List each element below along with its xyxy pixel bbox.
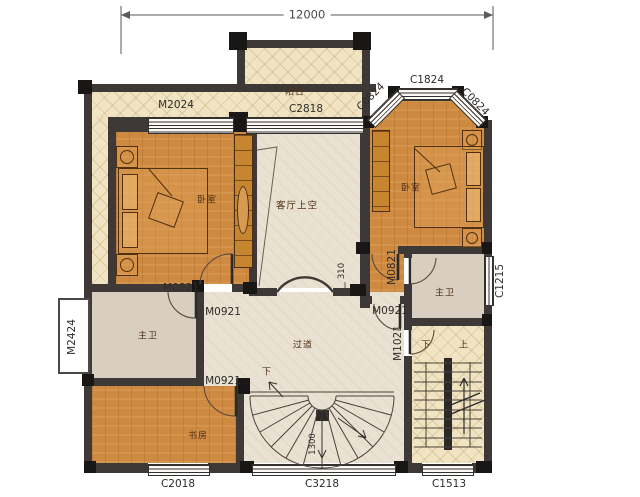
pillow — [122, 212, 138, 248]
stair-handrail — [444, 358, 452, 450]
corner-post — [350, 284, 366, 296]
wall-segment — [484, 120, 492, 256]
label-door-m0921-right: M0921 — [372, 306, 408, 317]
wall-segment — [237, 40, 370, 48]
label-door-m0921-study: M0921 — [205, 376, 241, 387]
wardrobe-right — [372, 130, 390, 212]
pillow — [466, 152, 481, 186]
wall-segment — [84, 284, 168, 292]
wall-segment — [404, 356, 412, 463]
window-c2818 — [246, 117, 364, 134]
corner-post — [482, 242, 492, 254]
wall-segment — [84, 378, 204, 386]
wall-segment — [84, 84, 376, 92]
total-width-dimension: 12000 — [284, 9, 331, 21]
label-window-c1215: C1215 — [495, 264, 506, 298]
label-bedroom-right: 卧室 — [401, 185, 421, 194]
label-stair-down-straight: 下 — [421, 342, 431, 351]
label-door-m0821-left: M0821 — [163, 283, 199, 294]
wall-segment — [108, 117, 116, 292]
wall-segment — [400, 296, 412, 304]
nightstand — [116, 146, 138, 168]
label-study: 书房 — [188, 433, 208, 442]
label-door-m0821-right: M0821 — [387, 249, 398, 285]
label-stair-down-curved: 下 — [262, 369, 272, 378]
floor-plan: 12000 阳台 C2818 M2024 C1824 C0824 C0824 卧… — [0, 0, 640, 497]
corner-post — [356, 242, 370, 254]
label-window-c1513: C1513 — [432, 479, 466, 490]
label-window-c1824: C1824 — [410, 75, 444, 86]
pillow — [466, 188, 481, 222]
nightstand — [116, 254, 138, 276]
corner-post — [394, 461, 408, 473]
stair-newel-post — [316, 410, 329, 421]
label-bedroom-left: 卧室 — [197, 197, 217, 206]
wall-segment — [404, 254, 412, 258]
label-window-c2018: C2018 — [161, 479, 195, 490]
corner-post — [353, 32, 371, 50]
label-balcony: 阳台 — [285, 89, 305, 98]
corner-post — [476, 461, 492, 473]
label-window-c3218: C3218 — [305, 479, 339, 490]
corner-post — [78, 80, 92, 94]
wall-segment — [257, 288, 277, 296]
label-window-c2818: C2818 — [289, 104, 323, 115]
study-floor — [92, 386, 236, 463]
label-door-m2024: M2024 — [158, 100, 194, 111]
label-corridor: 过道 — [293, 342, 313, 351]
label-door-m2424: M2424 — [67, 319, 78, 355]
window-c2018 — [148, 464, 210, 476]
wardrobe-mirror — [237, 186, 249, 234]
label-door-m1021: M1021 — [393, 325, 404, 361]
door-m2024-symbol — [148, 117, 234, 134]
window-c3218 — [252, 464, 396, 476]
window-c1513 — [422, 464, 474, 476]
label-bath-left: 主卫 — [138, 333, 158, 342]
wall-segment — [84, 84, 92, 463]
corner-post — [482, 314, 492, 326]
wall-segment — [366, 296, 372, 304]
dim-arch-offset: 310 — [338, 263, 347, 279]
dim-stairwell-width: 1300 — [309, 433, 318, 455]
balcony-floor-left-strip — [92, 117, 108, 284]
window-c1215 — [484, 256, 494, 306]
label-door-m0921-bath-left: M0921 — [205, 307, 241, 318]
pillow — [122, 174, 138, 210]
wall-segment — [196, 284, 204, 386]
wall-segment — [404, 318, 492, 326]
corner-post — [82, 374, 94, 386]
label-bath-right: 主卫 — [435, 290, 455, 299]
wall-segment — [484, 304, 492, 473]
wall-segment — [360, 120, 370, 308]
corner-post — [243, 282, 257, 294]
label-living-void: 客厅上空 — [276, 201, 318, 211]
bath-right-floor — [412, 254, 484, 318]
nightstand — [462, 228, 482, 248]
corner-post — [84, 461, 96, 473]
corner-post — [229, 32, 247, 50]
label-stair-up: 上 — [459, 342, 469, 351]
